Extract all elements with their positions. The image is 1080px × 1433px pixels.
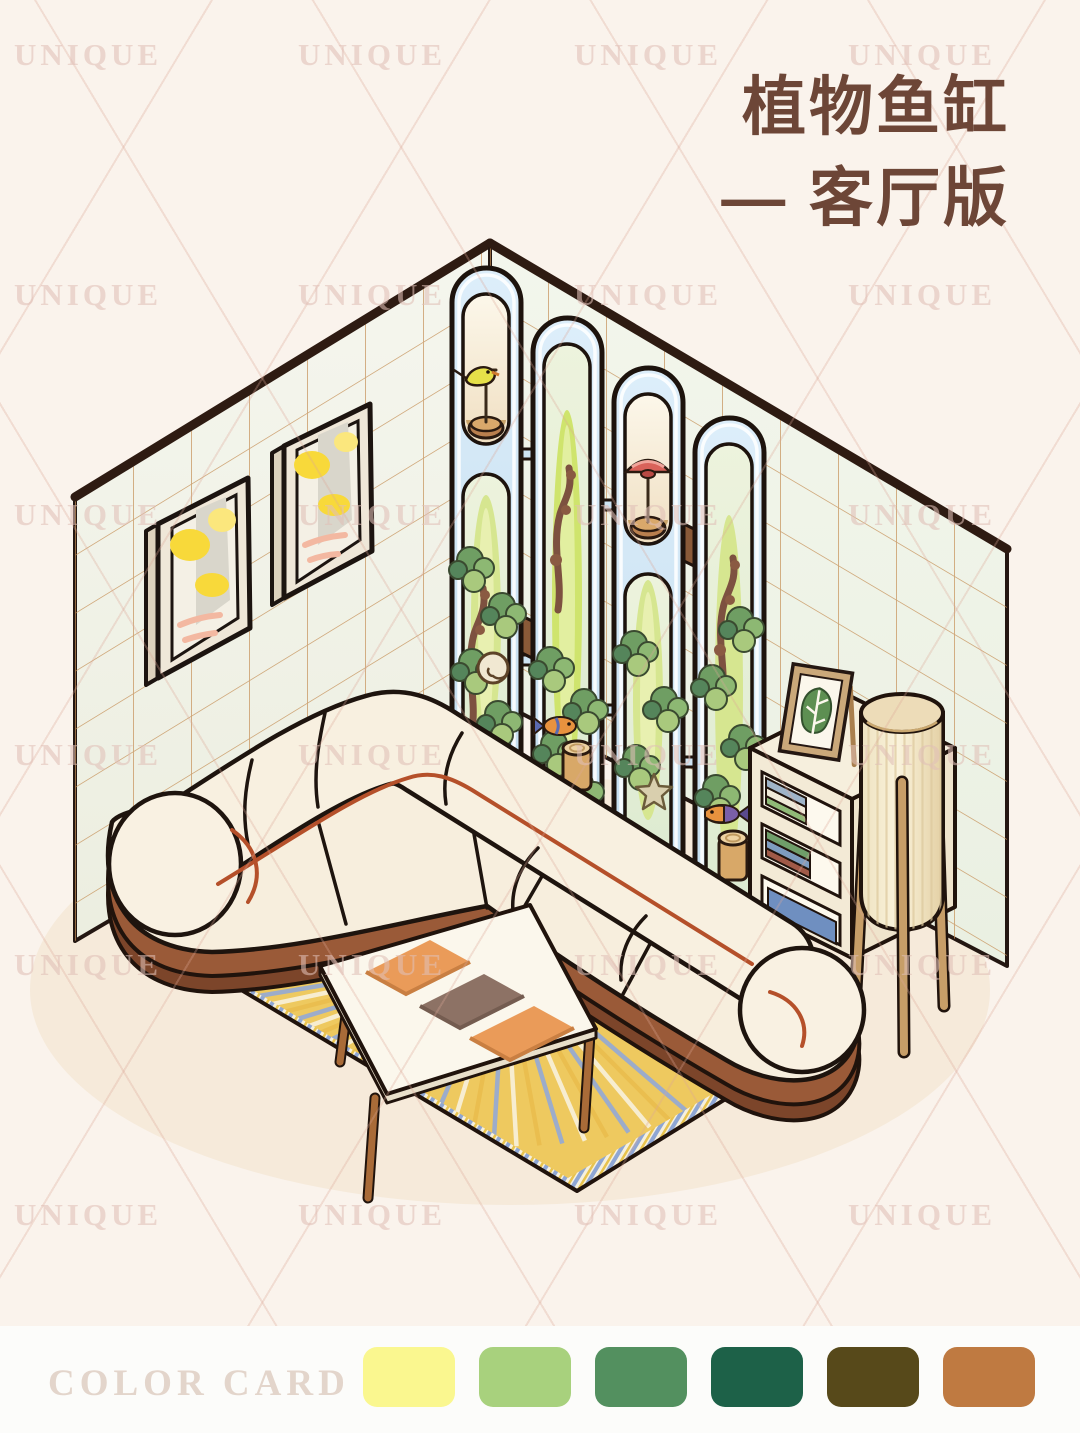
color-card-label: COLOR CARD <box>48 1362 350 1405</box>
poster: UNIQUEUNIQUEUNIQUEUNIQUEUNIQUEUNIQUEUNIQ… <box>0 0 1080 1433</box>
color-swatch-dark-olive <box>827 1347 919 1407</box>
sofa-right-end <box>740 948 864 1072</box>
color-swatch-row <box>363 1347 1035 1407</box>
sofa-left-arm <box>109 793 241 935</box>
poster-title: 植物鱼缸 — 客厅版 <box>721 62 1010 244</box>
color-swatch-medium-green <box>595 1347 687 1407</box>
color-swatch-pale-yellow <box>363 1347 455 1407</box>
color-swatch-terracotta <box>943 1347 1035 1407</box>
title-line-2: — 客厅版 <box>721 153 1010 244</box>
color-swatch-dark-teal-green <box>711 1347 803 1407</box>
color-swatch-light-green <box>479 1347 571 1407</box>
title-line-1: 植物鱼缸 <box>721 62 1010 153</box>
color-card-bar: COLOR CARD <box>0 1326 1080 1433</box>
wood-stump <box>719 831 747 880</box>
